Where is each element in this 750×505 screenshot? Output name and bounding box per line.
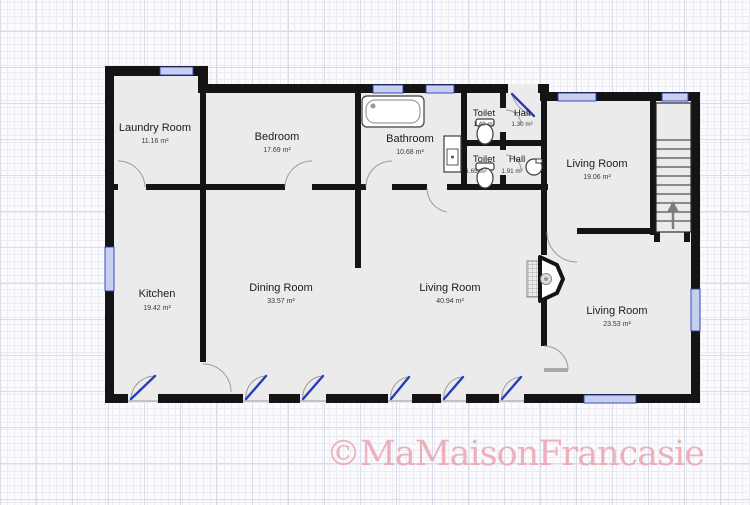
svg-text:Bathroom: Bathroom	[386, 133, 434, 145]
svg-text:40.94 m²: 40.94 m²	[436, 298, 464, 305]
svg-text:11.16 m²: 11.16 m²	[141, 138, 169, 145]
window-icon	[373, 85, 403, 93]
window-icon	[105, 247, 114, 291]
watermark: ©MaMaisonFrancasie	[326, 434, 746, 474]
window-icon	[558, 93, 596, 101]
toilet-icon	[476, 163, 494, 188]
svg-text:Toilet: Toilet	[473, 154, 496, 165]
svg-text:Hall: Hall	[509, 154, 525, 165]
svg-text:19.06 m²: 19.06 m²	[583, 174, 611, 181]
window-icon	[584, 395, 636, 403]
floor-plan: Laundry Room 11.16 m² Bedroom 17.69 m² B…	[0, 0, 750, 500]
bathtub-icon	[362, 96, 424, 127]
svg-text:Living Room: Living Room	[586, 305, 647, 317]
window-icon	[426, 85, 454, 93]
window-icon	[662, 93, 688, 101]
window-icon	[160, 67, 193, 75]
svg-text:Laundry Room: Laundry Room	[119, 122, 191, 134]
svg-text:19.42 m²: 19.42 m²	[143, 305, 171, 312]
sink-icon	[444, 136, 461, 172]
svg-text:Hall: Hall	[514, 108, 530, 119]
svg-text:1.30 m²: 1.30 m²	[511, 121, 532, 128]
door-threshold	[544, 368, 568, 372]
svg-text:Kitchen: Kitchen	[139, 288, 176, 300]
floor-plan-canvas: Laundry Room 11.16 m² Bedroom 17.69 m² B…	[0, 0, 750, 500]
window-icon	[691, 289, 700, 331]
room-label-toilet-top: Toilet 1.40 m²	[473, 108, 496, 128]
svg-text:1.40 m²: 1.40 m²	[473, 121, 494, 128]
fireplace-icon	[527, 257, 563, 301]
svg-text:Living Room: Living Room	[566, 158, 627, 170]
basin-icon	[526, 159, 542, 175]
svg-text:Bedroom: Bedroom	[255, 131, 300, 143]
svg-text:1.65 m²: 1.65 m²	[465, 168, 486, 175]
svg-text:Living Room: Living Room	[419, 282, 480, 294]
room-label-hall-top: Hall 1.30 m²	[511, 108, 532, 128]
svg-text:23.53 m²: 23.53 m²	[603, 321, 631, 328]
svg-text:17.69 m²: 17.69 m²	[263, 147, 291, 154]
svg-text:Toilet: Toilet	[473, 108, 496, 119]
svg-text:33.57 m²: 33.57 m²	[267, 298, 295, 305]
svg-text:10.68 m²: 10.68 m²	[396, 149, 424, 156]
svg-text:Dining Room: Dining Room	[249, 282, 313, 294]
svg-text:1.91 m²: 1.91 m²	[501, 168, 522, 175]
